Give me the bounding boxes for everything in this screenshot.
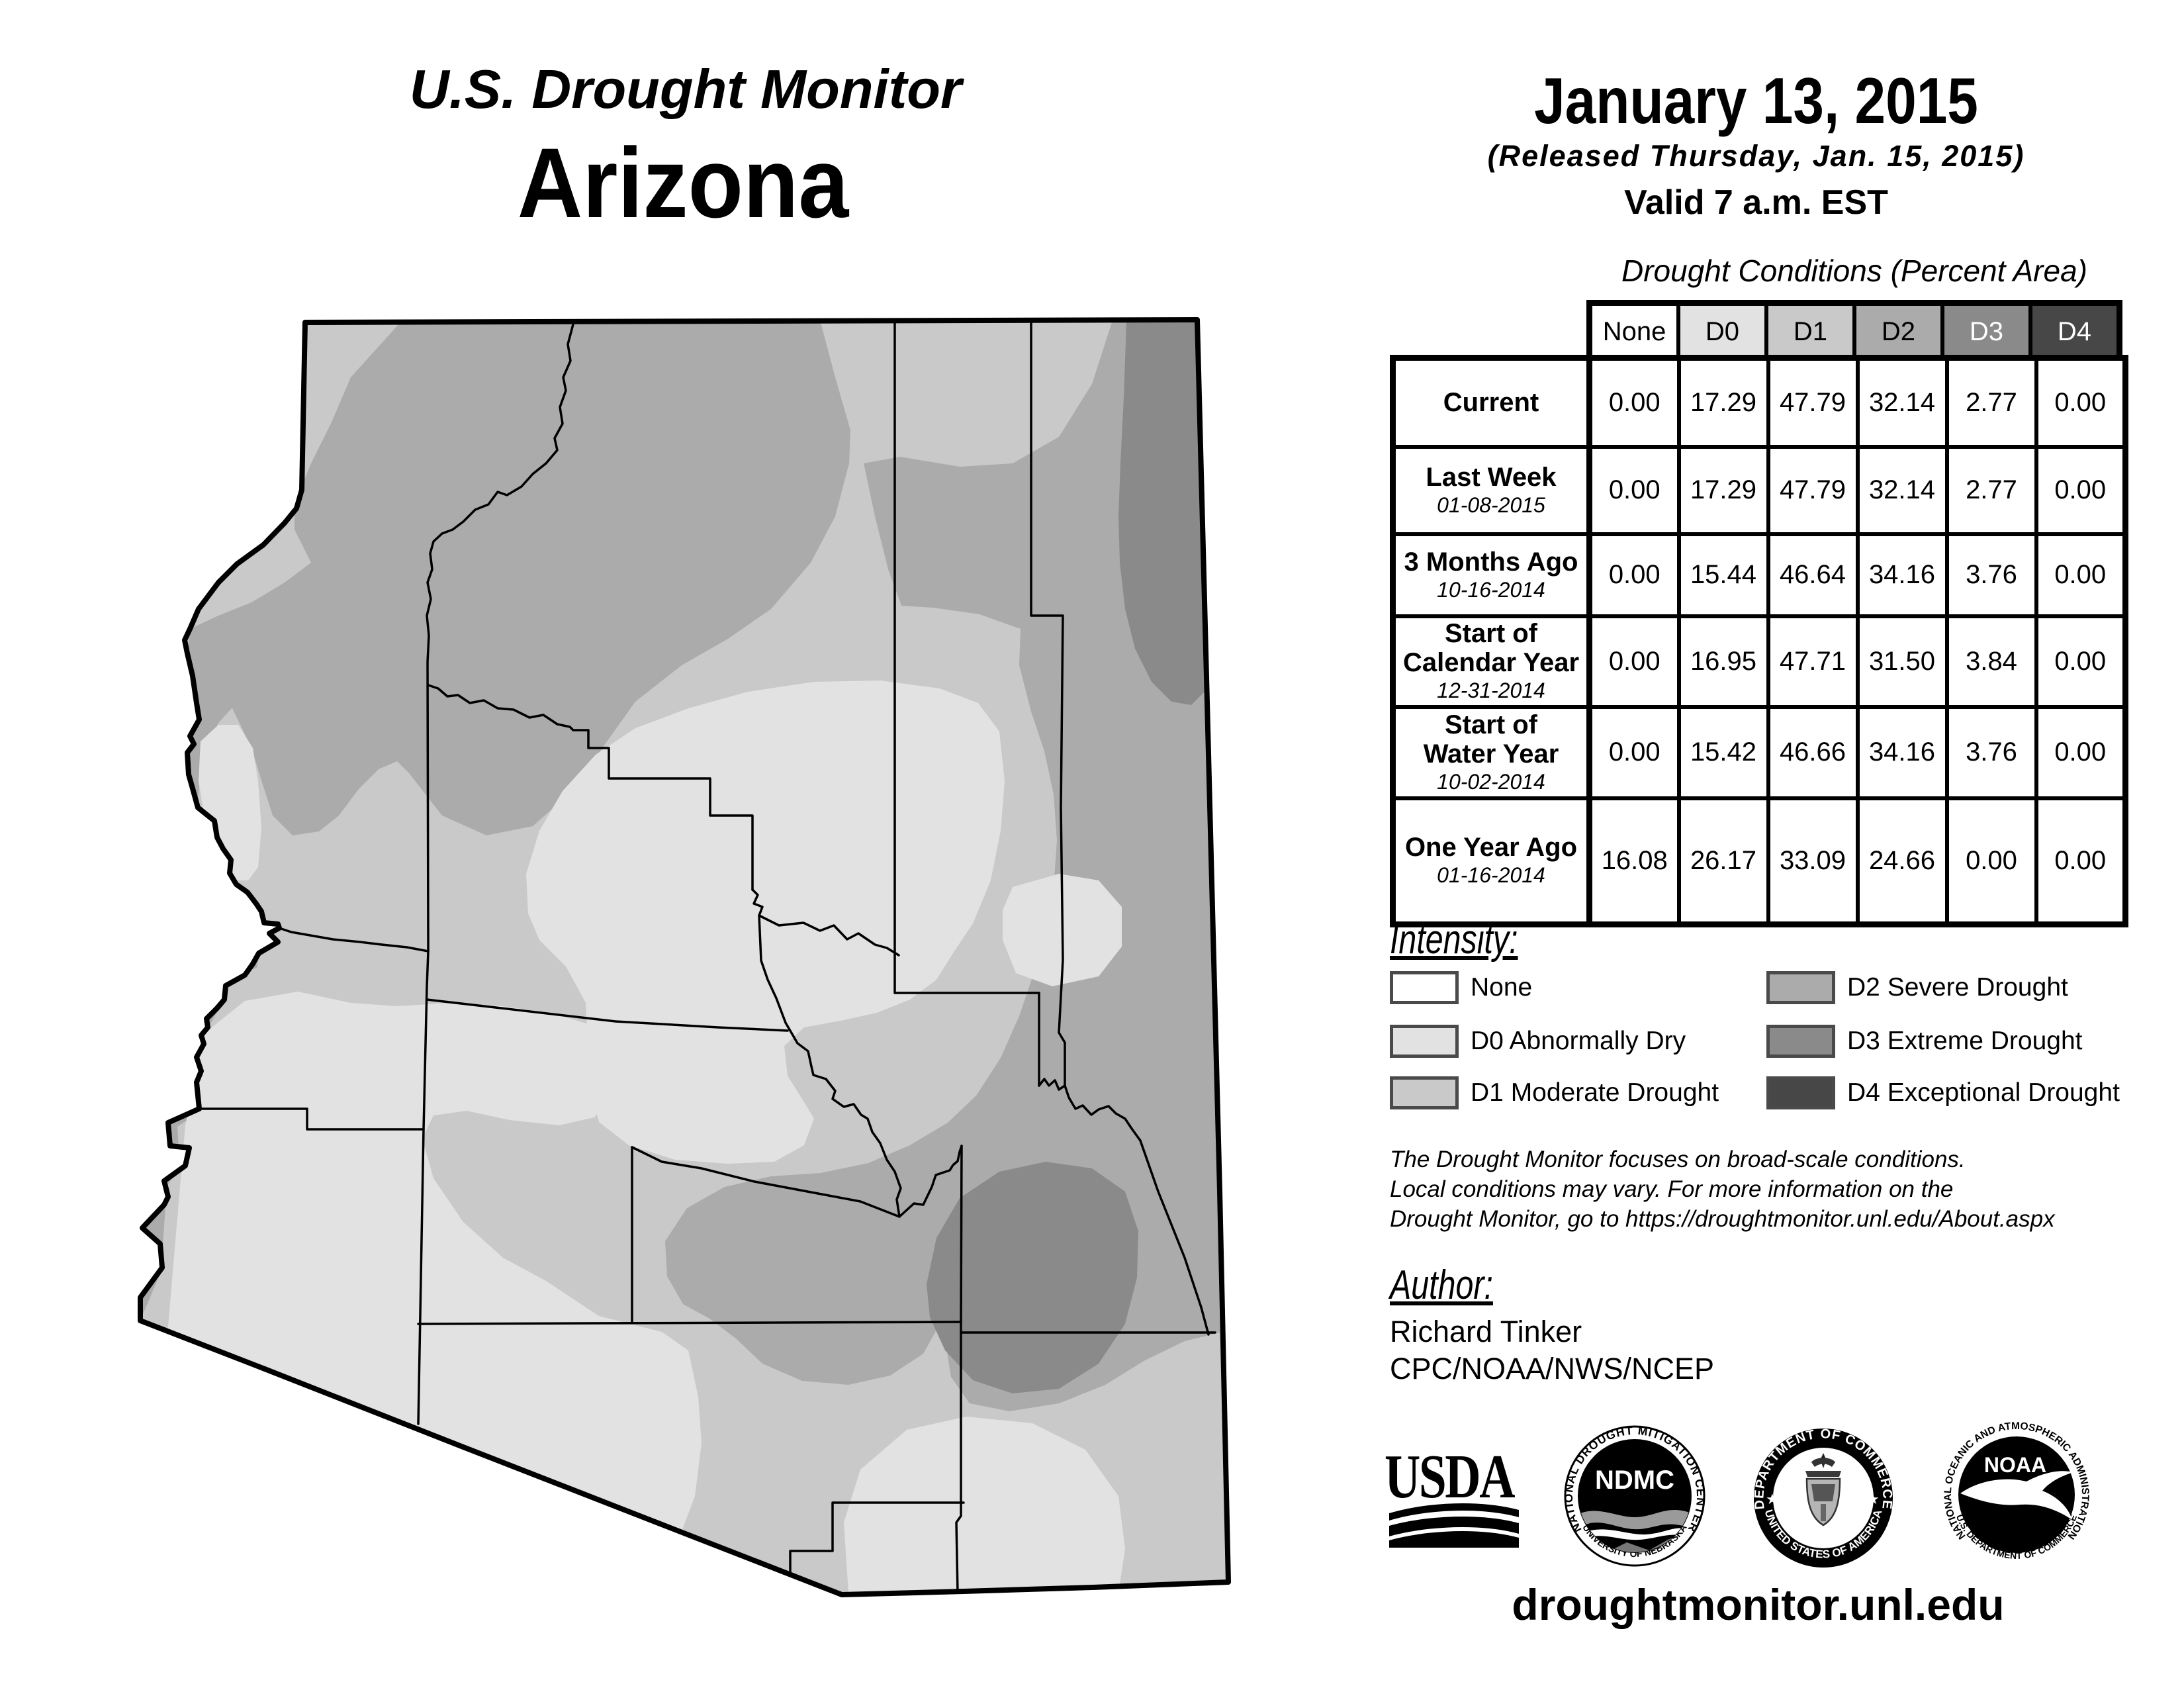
svg-text:★: ★ — [1766, 1491, 1779, 1507]
svg-text:NDMC: NDMC — [1595, 1466, 1674, 1495]
svg-text:NOAA: NOAA — [1984, 1453, 2046, 1477]
svg-text:★: ★ — [1866, 1491, 1880, 1507]
svg-text:USDA: USDA — [1385, 1442, 1515, 1511]
